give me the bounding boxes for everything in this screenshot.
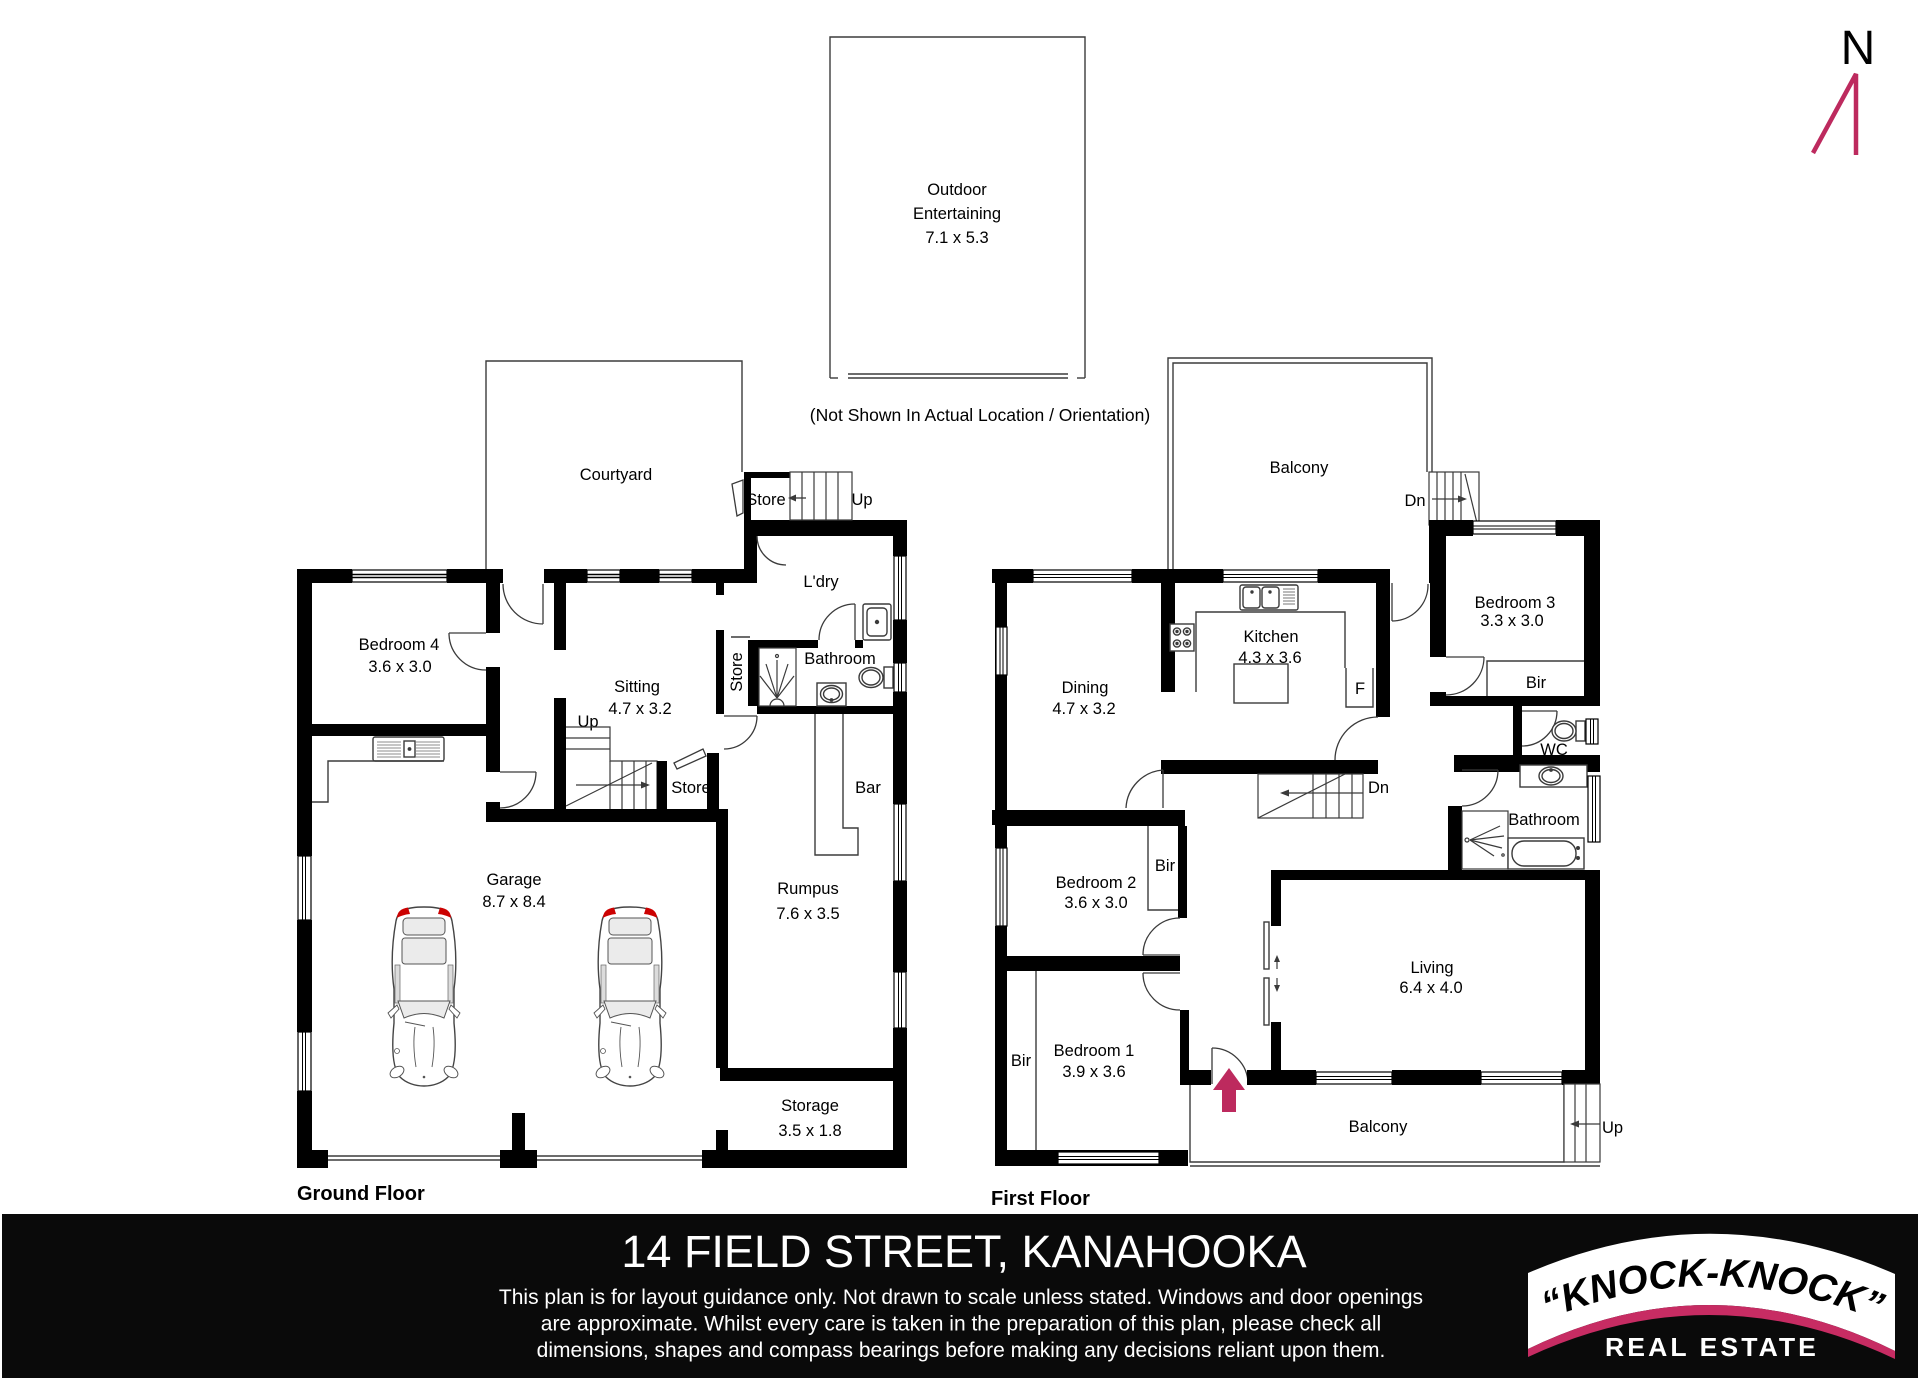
svg-text:4.7 x 3.2: 4.7 x 3.2: [1052, 700, 1115, 718]
svg-text:Bedroom 1: Bedroom 1: [1054, 1042, 1135, 1060]
svg-text:F: F: [1355, 680, 1365, 698]
svg-text:(Not Shown In Actual Location: (Not Shown In Actual Location / Orientat…: [810, 405, 1150, 425]
svg-text:Up: Up: [1602, 1119, 1623, 1137]
svg-text:Up: Up: [577, 713, 598, 731]
svg-text:Bedroom 3: Bedroom 3: [1475, 594, 1556, 612]
svg-text:3.5 x 1.8: 3.5 x 1.8: [778, 1122, 841, 1140]
svg-text:Store: Store: [746, 491, 785, 509]
svg-text:Outdoor: Outdoor: [927, 181, 987, 199]
svg-text:Kitchen: Kitchen: [1243, 628, 1298, 646]
svg-text:Up: Up: [851, 491, 872, 509]
svg-text:dimensions, shapes and compass: dimensions, shapes and compass bearings …: [537, 1339, 1386, 1362]
svg-text:Store: Store: [728, 652, 746, 691]
svg-text:N: N: [1841, 22, 1876, 75]
svg-text:Balcony: Balcony: [1349, 1118, 1408, 1136]
svg-text:Dn: Dn: [1404, 492, 1425, 510]
svg-text:Courtyard: Courtyard: [580, 466, 652, 484]
svg-text:Bar: Bar: [855, 779, 881, 797]
svg-text:are approximate. Whilst every: are approximate. Whilst every care is ta…: [541, 1313, 1381, 1336]
svg-text:3.6 x 3.0: 3.6 x 3.0: [368, 658, 431, 676]
svg-text:Ground Floor: Ground Floor: [297, 1183, 425, 1205]
svg-text:3.9 x 3.6: 3.9 x 3.6: [1062, 1063, 1125, 1081]
svg-text:Dining: Dining: [1062, 679, 1109, 697]
svg-text:Garage: Garage: [486, 871, 541, 889]
svg-text:7.6 x 3.5: 7.6 x 3.5: [776, 905, 839, 923]
svg-text:4.7 x 3.2: 4.7 x 3.2: [608, 700, 671, 718]
svg-text:Bedroom 4: Bedroom 4: [359, 636, 440, 654]
svg-text:Bir: Bir: [1526, 674, 1547, 692]
svg-text:4.3 x 3.6: 4.3 x 3.6: [1238, 649, 1301, 667]
svg-text:This plan is for layout guidan: This plan is for layout guidance only. N…: [499, 1286, 1423, 1309]
svg-text:L'dry: L'dry: [803, 573, 839, 591]
svg-text:Dn: Dn: [1368, 779, 1389, 797]
svg-text:Bathroom: Bathroom: [804, 650, 876, 668]
svg-text:Sitting: Sitting: [614, 678, 660, 696]
svg-text:Store: Store: [671, 779, 710, 797]
svg-text:14 FIELD STREET, KANAHOOKA: 14 FIELD STREET, KANAHOOKA: [621, 1226, 1306, 1277]
svg-text:7.1 x 5.3: 7.1 x 5.3: [925, 229, 988, 247]
svg-text:Entertaining: Entertaining: [913, 205, 1001, 223]
svg-text:First Floor: First Floor: [991, 1188, 1090, 1210]
svg-text:6.4 x 4.0: 6.4 x 4.0: [1399, 979, 1462, 997]
svg-text:Storage: Storage: [781, 1097, 839, 1115]
svg-text:Rumpus: Rumpus: [777, 880, 838, 898]
svg-text:Bir: Bir: [1011, 1052, 1032, 1070]
svg-text:Bir: Bir: [1155, 857, 1176, 875]
svg-text:Living: Living: [1410, 959, 1453, 977]
svg-text:Balcony: Balcony: [1270, 459, 1329, 477]
svg-text:8.7 x 8.4: 8.7 x 8.4: [482, 893, 545, 911]
svg-text:3.6 x 3.0: 3.6 x 3.0: [1064, 894, 1127, 912]
svg-text:3.3 x 3.0: 3.3 x 3.0: [1480, 612, 1543, 630]
svg-text:Bathroom: Bathroom: [1508, 811, 1580, 829]
svg-text:Bedroom 2: Bedroom 2: [1056, 874, 1137, 892]
svg-text:REAL ESTATE: REAL ESTATE: [1605, 1332, 1819, 1362]
